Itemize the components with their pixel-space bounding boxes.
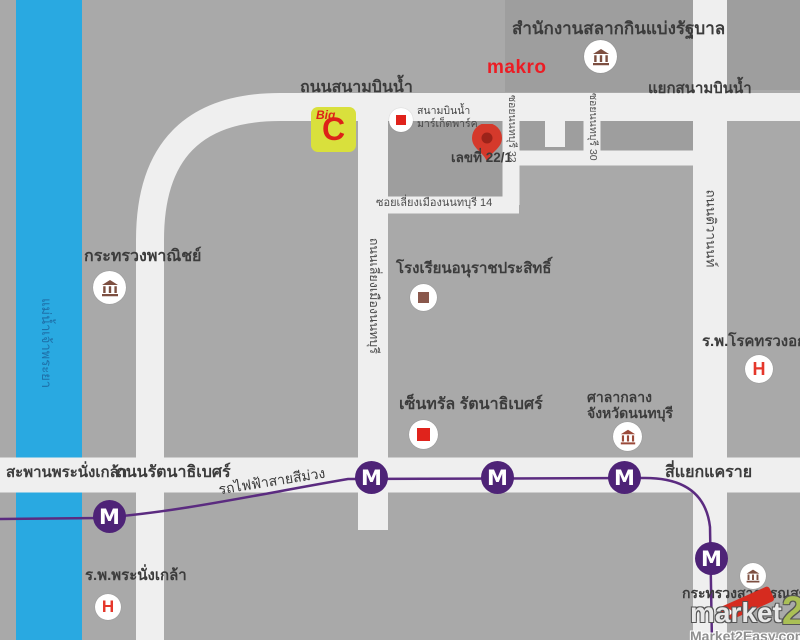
label-soi-14: ซอยเลี่ยงเมืองนนทบุรี 14 xyxy=(376,197,492,209)
mrt-station-icon: M xyxy=(695,542,728,575)
big-c-logo: Big C xyxy=(311,107,356,152)
label-lottery-office: สำนักงานสลากกินแบ่งรัฐบาล xyxy=(512,20,725,39)
label-road-bypass: ถนนเลี่ยงเมืองนนทบุรี xyxy=(366,221,380,371)
watermark-2: 2 xyxy=(782,595,800,627)
government-building-icon xyxy=(619,428,637,446)
mrt-station-icon: M xyxy=(93,500,126,533)
label-market-park-1: สนามบินน้ำ xyxy=(417,106,470,118)
label-school: โรงเรียนอนุราชประสิทธิ์ xyxy=(396,261,551,278)
label-river: แม่น้ำเจ้าพระยา xyxy=(39,283,53,403)
hospital-h-icon: H xyxy=(753,359,766,380)
road-notch xyxy=(545,121,565,147)
commerce-ministry-icon xyxy=(93,271,126,304)
pranangklao-hospital-icon: H xyxy=(95,594,121,620)
government-building-icon xyxy=(591,47,611,67)
government-building-icon xyxy=(745,568,761,584)
label-soi-32: ซอยนนทบุรี 32 xyxy=(505,91,517,167)
label-road-rattanathibet: ถนนรัตนาธิเบศร์ xyxy=(116,464,231,482)
mrt-station-icon: M xyxy=(608,461,641,494)
watermark-market: market xyxy=(690,599,782,627)
central-marker xyxy=(409,420,438,449)
market-park-marker xyxy=(389,108,413,132)
label-sanambinnam-junction: แยกสนามบินน้ำ xyxy=(648,81,752,98)
label-city-hall-2: จังหวัดนนทบุรี xyxy=(587,406,673,421)
label-city-hall-1: ศาลากลาง xyxy=(587,390,652,405)
red-square-icon xyxy=(396,115,406,125)
big-c-letter: C xyxy=(311,113,356,145)
brown-square-icon xyxy=(418,292,429,303)
location-map: สำนักงานสลากกินแบ่งรัฐบาล makro ถนนสนามบ… xyxy=(0,0,800,640)
watermark: market2 Market2Easy.com xyxy=(690,595,800,640)
watermark-site: Market2Easy.com xyxy=(690,628,800,640)
government-building-icon xyxy=(100,278,120,298)
label-soi-30: ซอยนนทบุรี 30 xyxy=(586,89,598,165)
hospital-h-icon: H xyxy=(102,597,114,617)
label-road-sanambinnam: ถนนสนามบินน้ำ xyxy=(300,79,413,97)
watermark-brand: market2 xyxy=(690,595,800,627)
lottery-office-icon xyxy=(584,40,617,73)
mrt-station-icon: M xyxy=(355,461,388,494)
label-khae-rai: สี่แยกแคราย xyxy=(665,464,752,482)
city-hall-icon xyxy=(613,422,642,451)
label-address: เลขที่ 22/1 xyxy=(451,151,512,166)
label-central: เซ็นทรัล รัตนาธิเบศร์ xyxy=(399,396,543,414)
label-chest-hospital: ร.พ.โรคทรวงอก xyxy=(702,334,800,351)
makro-logo: makro xyxy=(487,57,547,79)
label-pranangklao-hospital: ร.พ.พระนั่งเกล้า xyxy=(85,568,187,585)
mrt-station-icon: M xyxy=(481,461,514,494)
label-bridge: สะพานพระนั่งเกล้า xyxy=(6,465,127,482)
school-marker xyxy=(410,284,437,311)
label-commerce-ministry: กระทรวงพาณิชย์ xyxy=(84,248,201,266)
chest-hospital-icon: H xyxy=(745,355,773,383)
label-road-tiwanon: ถนนติวานนท์ xyxy=(703,178,718,278)
red-square-icon xyxy=(417,428,430,441)
